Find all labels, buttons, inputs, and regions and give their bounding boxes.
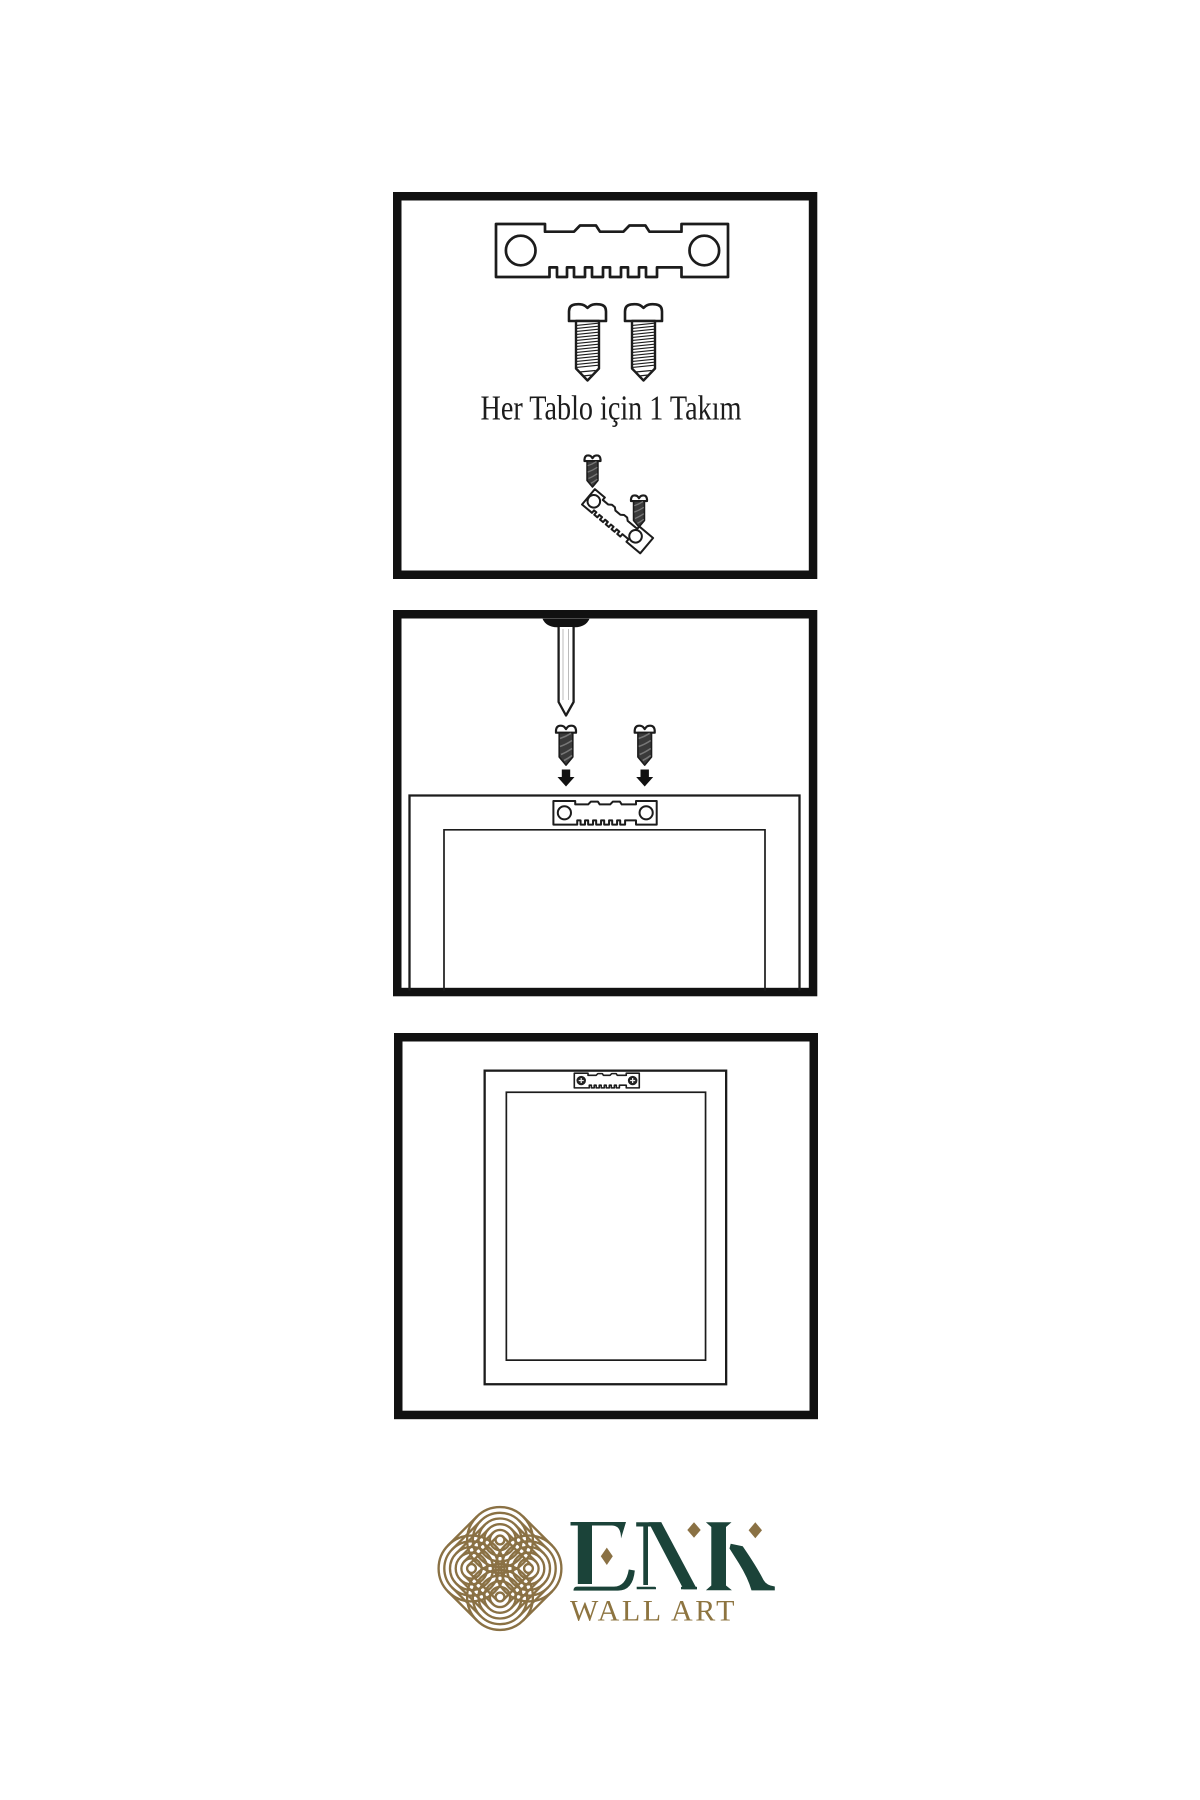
- svg-text:Her Tablo için 1 Takım: Her Tablo için 1 Takım: [480, 389, 741, 428]
- svg-text:WALL ART: WALL ART: [570, 1594, 737, 1627]
